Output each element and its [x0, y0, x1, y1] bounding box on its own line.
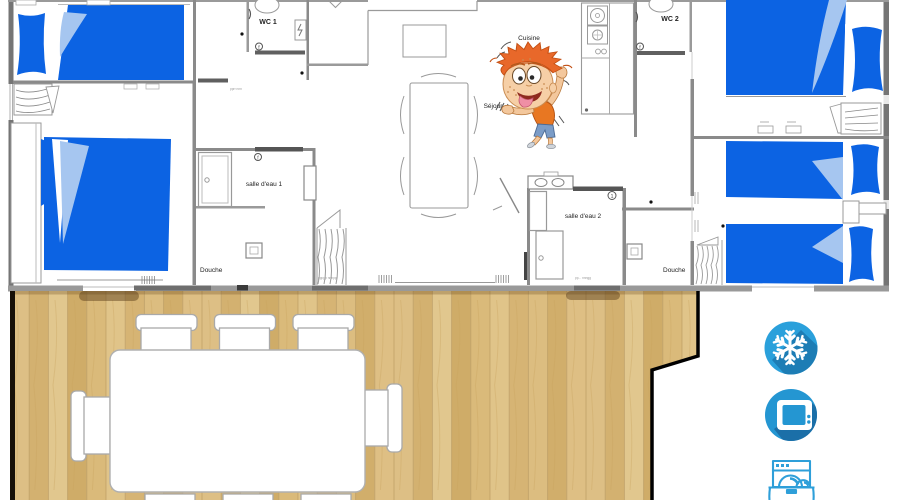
svg-text:1: 1 — [610, 194, 613, 200]
svg-text:pprr nnn: pprr nnn — [230, 87, 242, 91]
svg-text:WC 1: WC 1 — [259, 19, 277, 26]
svg-text:salle d'eau 2: salle d'eau 2 — [565, 213, 602, 220]
svg-text:salle d'eau 1: salle d'eau 1 — [246, 181, 283, 188]
svg-text:Cuisine: Cuisine — [518, 35, 540, 42]
svg-text:Douche: Douche — [663, 267, 686, 274]
svg-text:pp... nnngg: pp... nnngg — [575, 276, 591, 280]
svg-text:Douche: Douche — [200, 267, 223, 274]
svg-text:ppppp nnnpp: ppppp nnnpp — [318, 276, 337, 280]
svg-text:WC 2: WC 2 — [661, 16, 679, 23]
svg-text:Séjour: Séjour — [484, 103, 504, 110]
